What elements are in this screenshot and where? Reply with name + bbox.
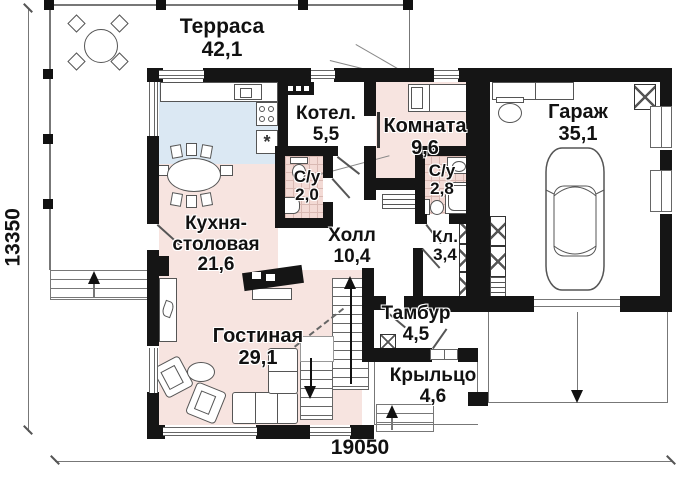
driveway-edge [667, 312, 668, 403]
door-leaf [332, 178, 351, 199]
room-label-living-room: Гостиная 29,1 [196, 326, 320, 369]
driveway-centerline [577, 312, 578, 396]
floor-plan-canvas: 13350 19050 [0, 0, 677, 480]
room-label-boiler: Котел. 5,5 [288, 104, 364, 145]
garage-door-line [534, 299, 620, 300]
fridge-star-icon: * [257, 132, 277, 153]
wall [275, 146, 285, 228]
driveway-edge [488, 312, 489, 403]
terrace-post [403, 0, 413, 10]
arrow-stem [391, 416, 393, 430]
down-arrow-icon [304, 386, 316, 399]
room-name: Комната [383, 115, 466, 137]
room-area: 4,5 [374, 325, 458, 346]
window [163, 427, 257, 436]
room-label-kitchen-dining: Кухня-столовая 21,6 [164, 214, 268, 276]
room-name: С/у [429, 161, 455, 180]
dimension-tick [50, 455, 60, 465]
room-area: 2,8 [420, 180, 464, 198]
room-name: Холл [328, 225, 376, 246]
garage-window [650, 170, 672, 212]
terrace-chair [67, 52, 85, 70]
boiler-unit-detail [304, 86, 309, 91]
window [149, 82, 158, 136]
dining-chair [200, 192, 213, 207]
dining-table [167, 158, 221, 192]
window [149, 348, 158, 393]
room-label-garage: Гараж 35,1 [528, 102, 628, 145]
window [434, 70, 459, 79]
room-label-terrace: Терраса 42,1 [152, 16, 292, 61]
room-area: 42,1 [152, 39, 292, 62]
wall [147, 136, 159, 224]
sink-basin [240, 88, 252, 98]
boiler-unit-detail [288, 86, 293, 91]
terrace-edge-right [409, 6, 410, 68]
room-name: С/у [294, 167, 320, 186]
stove [256, 102, 278, 126]
room-name: Тамбур [382, 303, 451, 324]
dimension-tick [666, 455, 676, 465]
porch-edge [374, 424, 478, 425]
porch-edge [374, 360, 375, 425]
arrow-stem [93, 282, 95, 298]
up-arrow-icon [344, 276, 356, 289]
sofa [232, 392, 298, 424]
room-area: 4,6 [380, 387, 486, 408]
wall [660, 214, 672, 306]
dimension-label-width: 19050 [295, 437, 425, 460]
wall [620, 296, 672, 312]
tv [252, 288, 292, 300]
wall [480, 68, 672, 82]
garage-storage [490, 246, 506, 277]
garage-window [650, 106, 672, 148]
room-area: 29,1 [196, 348, 320, 370]
toilet-bowl [430, 200, 444, 215]
room-name: Кл. [432, 227, 458, 246]
dining-chair [200, 144, 213, 159]
boiler-unit-detail [296, 86, 301, 91]
dining-chair [170, 144, 183, 159]
room-label-porch: Крыльцо 4,6 [380, 366, 486, 407]
terrace-post [156, 0, 166, 10]
terrace-post [43, 134, 53, 144]
sofa-cushion-line [269, 371, 297, 372]
terrace-post [43, 69, 53, 79]
wall [203, 68, 311, 82]
car [542, 146, 608, 292]
room-name: Терраса [180, 15, 264, 38]
fireplace-cabinet [159, 278, 177, 342]
arrow-stem [350, 284, 352, 384]
dining-chair [170, 192, 183, 207]
terrace-post [298, 0, 308, 10]
dimension-label-height: 13350 [3, 207, 26, 267]
sofa-cushion-line [277, 393, 278, 423]
dining-chair [186, 143, 197, 156]
terrace-chair [110, 14, 128, 32]
toilet-tank [290, 157, 308, 164]
room-area: 3,4 [420, 246, 470, 264]
pillow [411, 87, 423, 109]
armchair-seat [160, 365, 184, 390]
workbench-divider [535, 83, 536, 99]
terrace-post [43, 199, 53, 209]
burner [268, 116, 274, 122]
window [311, 70, 335, 79]
room-area: 9,6 [368, 138, 482, 160]
room-label-hall: Холл 10,4 [312, 226, 392, 267]
wall [415, 214, 427, 224]
armchair-seat [194, 390, 216, 415]
bed-line [429, 85, 430, 111]
room-label-bathroom2: С/у 2,8 [420, 162, 464, 199]
room-label-closet: Кл. 3,4 [420, 228, 470, 265]
window [159, 70, 204, 79]
wall [364, 68, 376, 116]
bed [408, 84, 472, 112]
room-name: Гостиная [213, 325, 303, 347]
room-area: 2,0 [288, 186, 326, 204]
room-name: Котел. [296, 103, 356, 124]
up-arrow-icon [88, 271, 100, 284]
decor-leaf [161, 300, 176, 318]
wall [466, 80, 478, 306]
dining-chair [220, 165, 233, 176]
kitchen-sink [234, 84, 262, 100]
dimension-line-left [28, 8, 29, 432]
wall [334, 68, 434, 82]
dining-chair [186, 195, 197, 208]
terrace-post [44, 0, 54, 10]
room-name: Гараж [548, 101, 608, 123]
burner [259, 116, 265, 122]
room-area: 21,6 [164, 255, 268, 276]
wall [458, 348, 478, 362]
dimension-line-bottom [55, 461, 672, 462]
room-area: 35,1 [528, 124, 628, 146]
window [310, 427, 351, 436]
room-label-bedroom: Комната 9,6 [368, 116, 482, 159]
room-area: 10,4 [312, 247, 392, 268]
garage-storage [490, 216, 506, 246]
sofa-cushion-line [255, 393, 256, 423]
porch-steps [376, 404, 434, 432]
room-name: Крыльцо [390, 365, 476, 386]
room-label-tambour: Тамбур 4,5 [374, 304, 458, 345]
leader-line [356, 44, 400, 70]
wall [478, 80, 490, 306]
entrance-door [430, 349, 458, 360]
burner [259, 106, 265, 112]
burner [268, 106, 274, 112]
room-label-bathroom1: С/у 2,0 [288, 168, 326, 205]
terrace-table [84, 29, 118, 63]
garage-door-line [534, 306, 620, 307]
wall [147, 250, 159, 346]
terrace-edge-top [50, 4, 410, 6]
wall [368, 348, 432, 362]
room-area: 5,5 [288, 125, 364, 146]
door-leaf [337, 156, 360, 175]
office-chair [498, 103, 522, 123]
room-name: Кухня-столовая [172, 213, 259, 255]
wall [449, 214, 477, 224]
down-arrow-icon [571, 390, 583, 403]
terrace-chair [67, 14, 85, 32]
